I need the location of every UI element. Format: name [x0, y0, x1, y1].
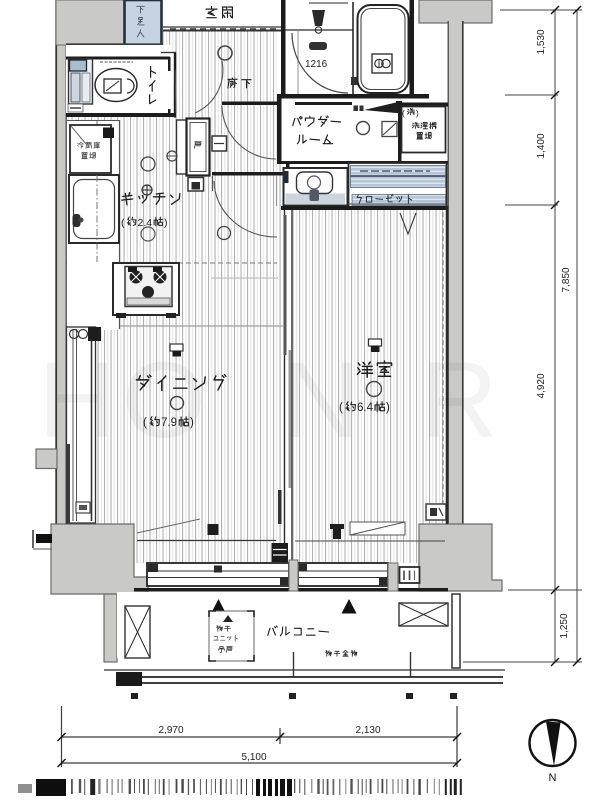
svg-text:N: N	[549, 772, 557, 784]
svg-text:2,970: 2,970	[158, 725, 183, 736]
svg-text:4,920: 4,920	[536, 373, 547, 398]
svg-text:O: O	[122, 339, 206, 460]
svg-text:N: N	[282, 339, 360, 460]
svg-text:2,130: 2,130	[355, 725, 380, 736]
svg-text:5,100: 5,100	[241, 752, 266, 763]
svg-text:(: (	[402, 109, 405, 118]
svg-text:): )	[164, 217, 168, 229]
svg-text:(: (	[121, 217, 125, 229]
svg-text:H: H	[38, 339, 116, 460]
svg-text:): )	[386, 402, 390, 414]
svg-text:1,250: 1,250	[559, 613, 570, 638]
svg-text:R: R	[420, 339, 498, 460]
svg-text:1,530: 1,530	[536, 29, 547, 54]
svg-text:1216: 1216	[305, 59, 328, 70]
svg-text:1,400: 1,400	[536, 133, 547, 158]
svg-text:): )	[416, 109, 419, 118]
svg-text:7,850: 7,850	[561, 267, 572, 292]
